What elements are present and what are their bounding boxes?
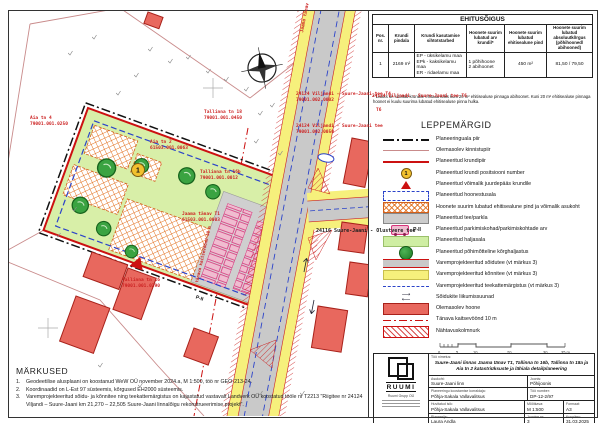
notes-block: MÄRKUSED 1.Geodeetilise alusplaani on ko… — [16, 366, 368, 410]
panel-divider — [368, 10, 369, 417]
plan-sheet: P-II 1 — [0, 0, 600, 423]
note-item: 1.Geodeetilise alusplaani on koostanud W… — [16, 379, 368, 387]
sheet-frame — [8, 10, 598, 418]
note-item: 3.Varemprojekteeritud sõidu- ja kõnnitee… — [16, 394, 368, 409]
notes-title: MÄRKUSED — [16, 366, 368, 376]
